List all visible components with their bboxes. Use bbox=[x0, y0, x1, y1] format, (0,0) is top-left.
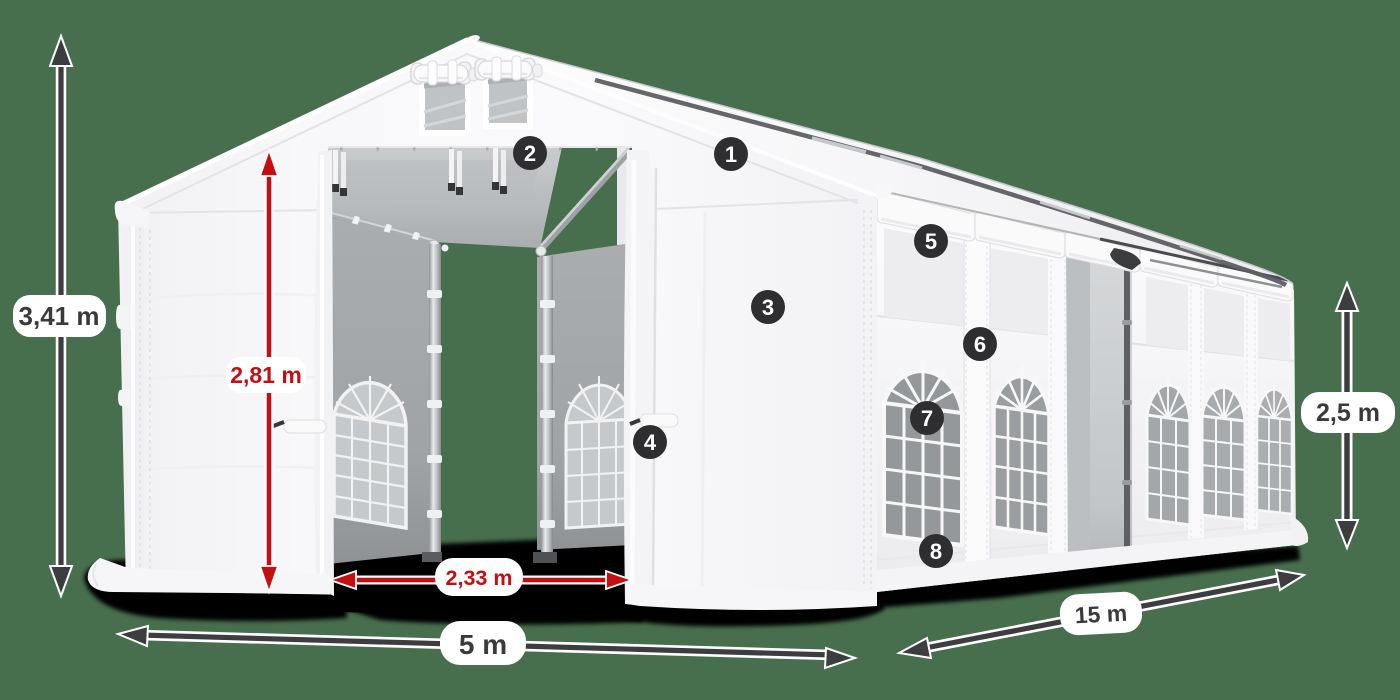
svg-text:2,33 m: 2,33 m bbox=[446, 566, 513, 590]
svg-text:7: 7 bbox=[921, 406, 933, 431]
svg-text:2: 2 bbox=[524, 141, 536, 166]
svg-text:15 m: 15 m bbox=[1074, 600, 1128, 629]
svg-text:5 m: 5 m bbox=[459, 629, 507, 660]
svg-text:8: 8 bbox=[930, 539, 942, 564]
svg-text:1: 1 bbox=[725, 142, 737, 167]
svg-text:2,5 m: 2,5 m bbox=[1316, 399, 1380, 427]
svg-text:3: 3 bbox=[762, 295, 774, 320]
svg-text:4: 4 bbox=[644, 430, 657, 455]
svg-text:2,81 m: 2,81 m bbox=[230, 362, 302, 388]
svg-text:3,41 m: 3,41 m bbox=[19, 301, 100, 331]
svg-text:6: 6 bbox=[974, 332, 986, 357]
svg-text:5: 5 bbox=[925, 229, 937, 254]
